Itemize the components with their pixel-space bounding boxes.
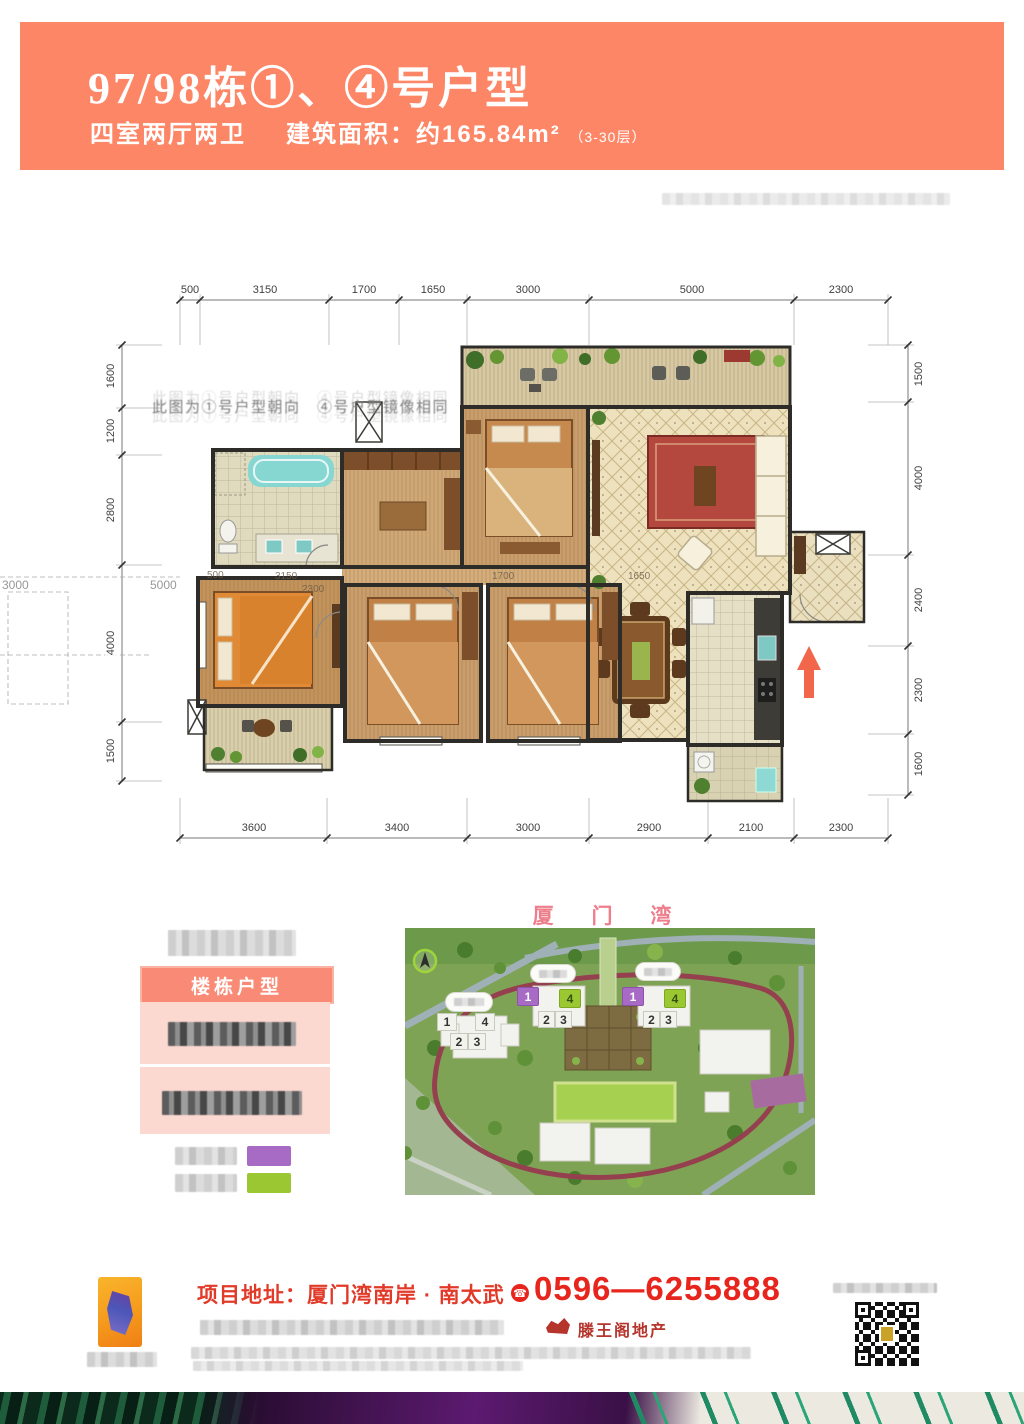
dim-label: 4000	[913, 465, 925, 491]
redacted-legend-title	[168, 930, 296, 956]
dim-label: 1600	[913, 751, 925, 777]
redacted-unit-text	[162, 1091, 302, 1115]
dim-label: 2800	[105, 497, 117, 523]
unit-cell-3: 3	[468, 1033, 486, 1050]
unit-cell-3: 3	[660, 1011, 677, 1028]
construction-lines	[0, 577, 180, 704]
ghost-dim: 1700	[492, 571, 514, 582]
redacted-building-name	[644, 968, 672, 976]
redacted-swatch-label-2	[175, 1174, 237, 1192]
dim-label: 1500	[105, 738, 117, 764]
dim-label: 1650	[420, 284, 446, 296]
redacted-logo-caption	[87, 1352, 157, 1367]
orientation-note: 此图为①号户型朝向 ④号户型镜像相同	[152, 396, 482, 417]
area-value: 约165.84m²	[416, 121, 561, 148]
ghost-dim: 1650	[628, 571, 650, 582]
dim-label: 2300	[828, 284, 854, 296]
unit-cell-2: 2	[538, 1011, 555, 1028]
building-label-oval	[445, 992, 493, 1012]
ghost-dim: 3000	[2, 578, 29, 592]
phone-number: 0596—6255888	[534, 1270, 781, 1308]
dim-label: 3000	[515, 284, 541, 296]
dim-label: 2300	[913, 677, 925, 703]
qr-code	[855, 1302, 919, 1366]
sitemap-title: 厦 门 湾	[405, 900, 815, 930]
dim-label: 3400	[384, 822, 410, 834]
redacted-building-name	[539, 970, 567, 978]
legend-swatch-green	[247, 1173, 291, 1193]
central-lawn	[555, 1083, 675, 1121]
unit-cell-3: 3	[555, 1011, 572, 1028]
dim-label: 4000	[105, 630, 117, 656]
floor-range: （3-30层）	[569, 129, 646, 145]
redacted-disclaimer-1	[200, 1320, 504, 1335]
floor-plan-drawing	[0, 260, 1024, 860]
dim-label: 1600	[105, 363, 117, 389]
dim-label: 2900	[636, 822, 662, 834]
building-label-oval	[635, 962, 681, 981]
unit-cell-1: 1	[437, 1013, 457, 1031]
building-label-oval	[530, 964, 576, 983]
ghost-dim: 500	[207, 570, 224, 581]
unit-cell-1-highlight: 1	[622, 987, 644, 1006]
redacted-building-name	[454, 998, 484, 1006]
brand-seal-icon	[546, 1318, 570, 1334]
ghost-dim: 3150	[275, 571, 297, 582]
redacted-qr-caption	[833, 1283, 937, 1293]
decorative-leaf-strip	[0, 1392, 1024, 1424]
legend-unit-box-2	[140, 1067, 330, 1134]
redacted-disclaimer-top	[662, 193, 950, 205]
dim-label: 2100	[738, 822, 764, 834]
dim-label: 3000	[515, 822, 541, 834]
redacted-unit-text	[168, 1022, 296, 1046]
dim-label: 2300	[828, 822, 854, 834]
legend-header: 楼栋户型	[140, 966, 334, 1004]
flyer-page: { "header": { "title": "97/98栋①、④号户型", "…	[0, 0, 1024, 1424]
legend-unit-box-1	[140, 1002, 330, 1064]
phone-icon: ☎	[511, 1284, 529, 1302]
ghost-dim: 2300	[302, 584, 324, 595]
address-label: 项目地址：	[197, 1284, 307, 1307]
dim-label: 1200	[105, 418, 117, 444]
unit-cell-1-highlight: 1	[517, 987, 539, 1006]
brand-name: 滕王阁地产	[578, 1317, 668, 1341]
header-subtitle: 四室两厅两卫建筑面积：约165.84m² （3-30层）	[90, 114, 646, 149]
sitemap-image	[405, 928, 815, 1195]
legend-swatch-purple	[247, 1146, 291, 1166]
dim-label: 5000	[679, 284, 705, 296]
bathtub	[248, 455, 334, 487]
address-value: 厦门湾南岸 · 南太武	[307, 1284, 505, 1307]
dim-label: 2400	[913, 587, 925, 613]
dim-label: 3150	[252, 284, 278, 296]
redacted-disclaimer-2	[191, 1347, 751, 1359]
dim-label: 1700	[351, 284, 377, 296]
room-count: 四室两厅两卫	[90, 121, 246, 148]
qr-center-logo	[880, 1326, 894, 1342]
redacted-swatch-label-1	[175, 1147, 237, 1165]
entry-arrow-icon	[797, 646, 821, 698]
legend-header-label: 楼栋户型	[191, 972, 283, 999]
redacted-disclaimer-3	[193, 1361, 523, 1371]
unit-cell-4-highlight: 4	[559, 989, 581, 1008]
project-logo	[98, 1277, 142, 1347]
area-label: 建筑面积：	[286, 121, 416, 148]
project-address: 项目地址：厦门湾南岸 · 南太武	[197, 1279, 505, 1309]
unit-cell-4-highlight: 4	[664, 989, 686, 1008]
header-banner: 97/98栋①、④号户型 四室两厅两卫建筑面积：约165.84m² （3-30层…	[20, 22, 1004, 170]
dim-label: 500	[180, 284, 200, 296]
ghost-dim: 5000	[150, 578, 177, 592]
page-title: 97/98栋①、④号户型	[88, 52, 532, 116]
compass-icon	[414, 950, 436, 972]
unit-cell-2: 2	[450, 1033, 468, 1050]
dim-label: 3600	[241, 822, 267, 834]
dim-label: 1500	[913, 361, 925, 387]
sofa	[756, 436, 786, 556]
unit-cell-2: 2	[643, 1011, 660, 1028]
unit-cell-4: 4	[475, 1013, 495, 1031]
